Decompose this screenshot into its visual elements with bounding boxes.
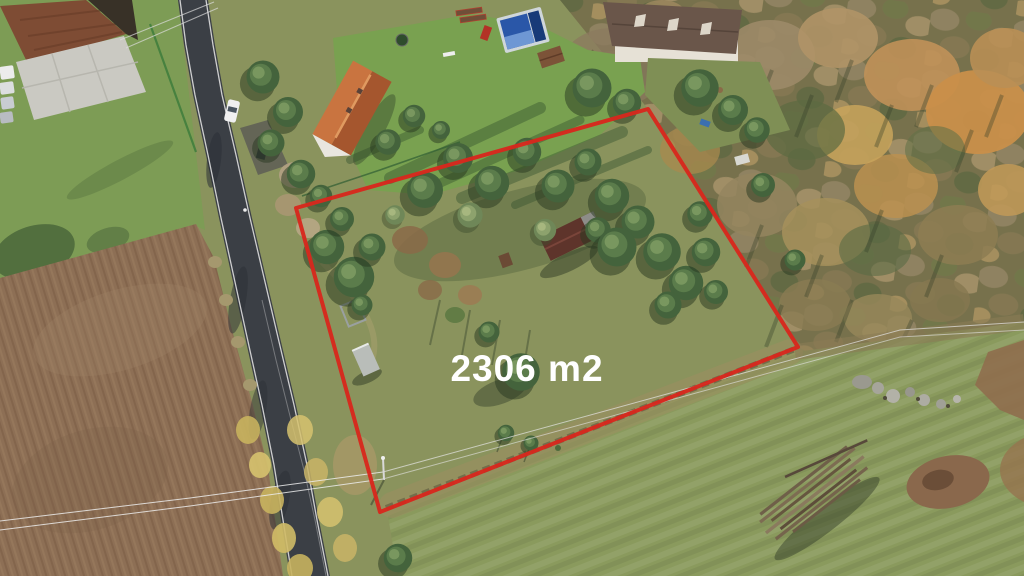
white-house xyxy=(603,2,742,62)
aerial-photo: 2306 m2 xyxy=(0,0,1024,576)
area-label: 2306 m2 xyxy=(450,348,603,389)
trampoline xyxy=(396,34,408,46)
